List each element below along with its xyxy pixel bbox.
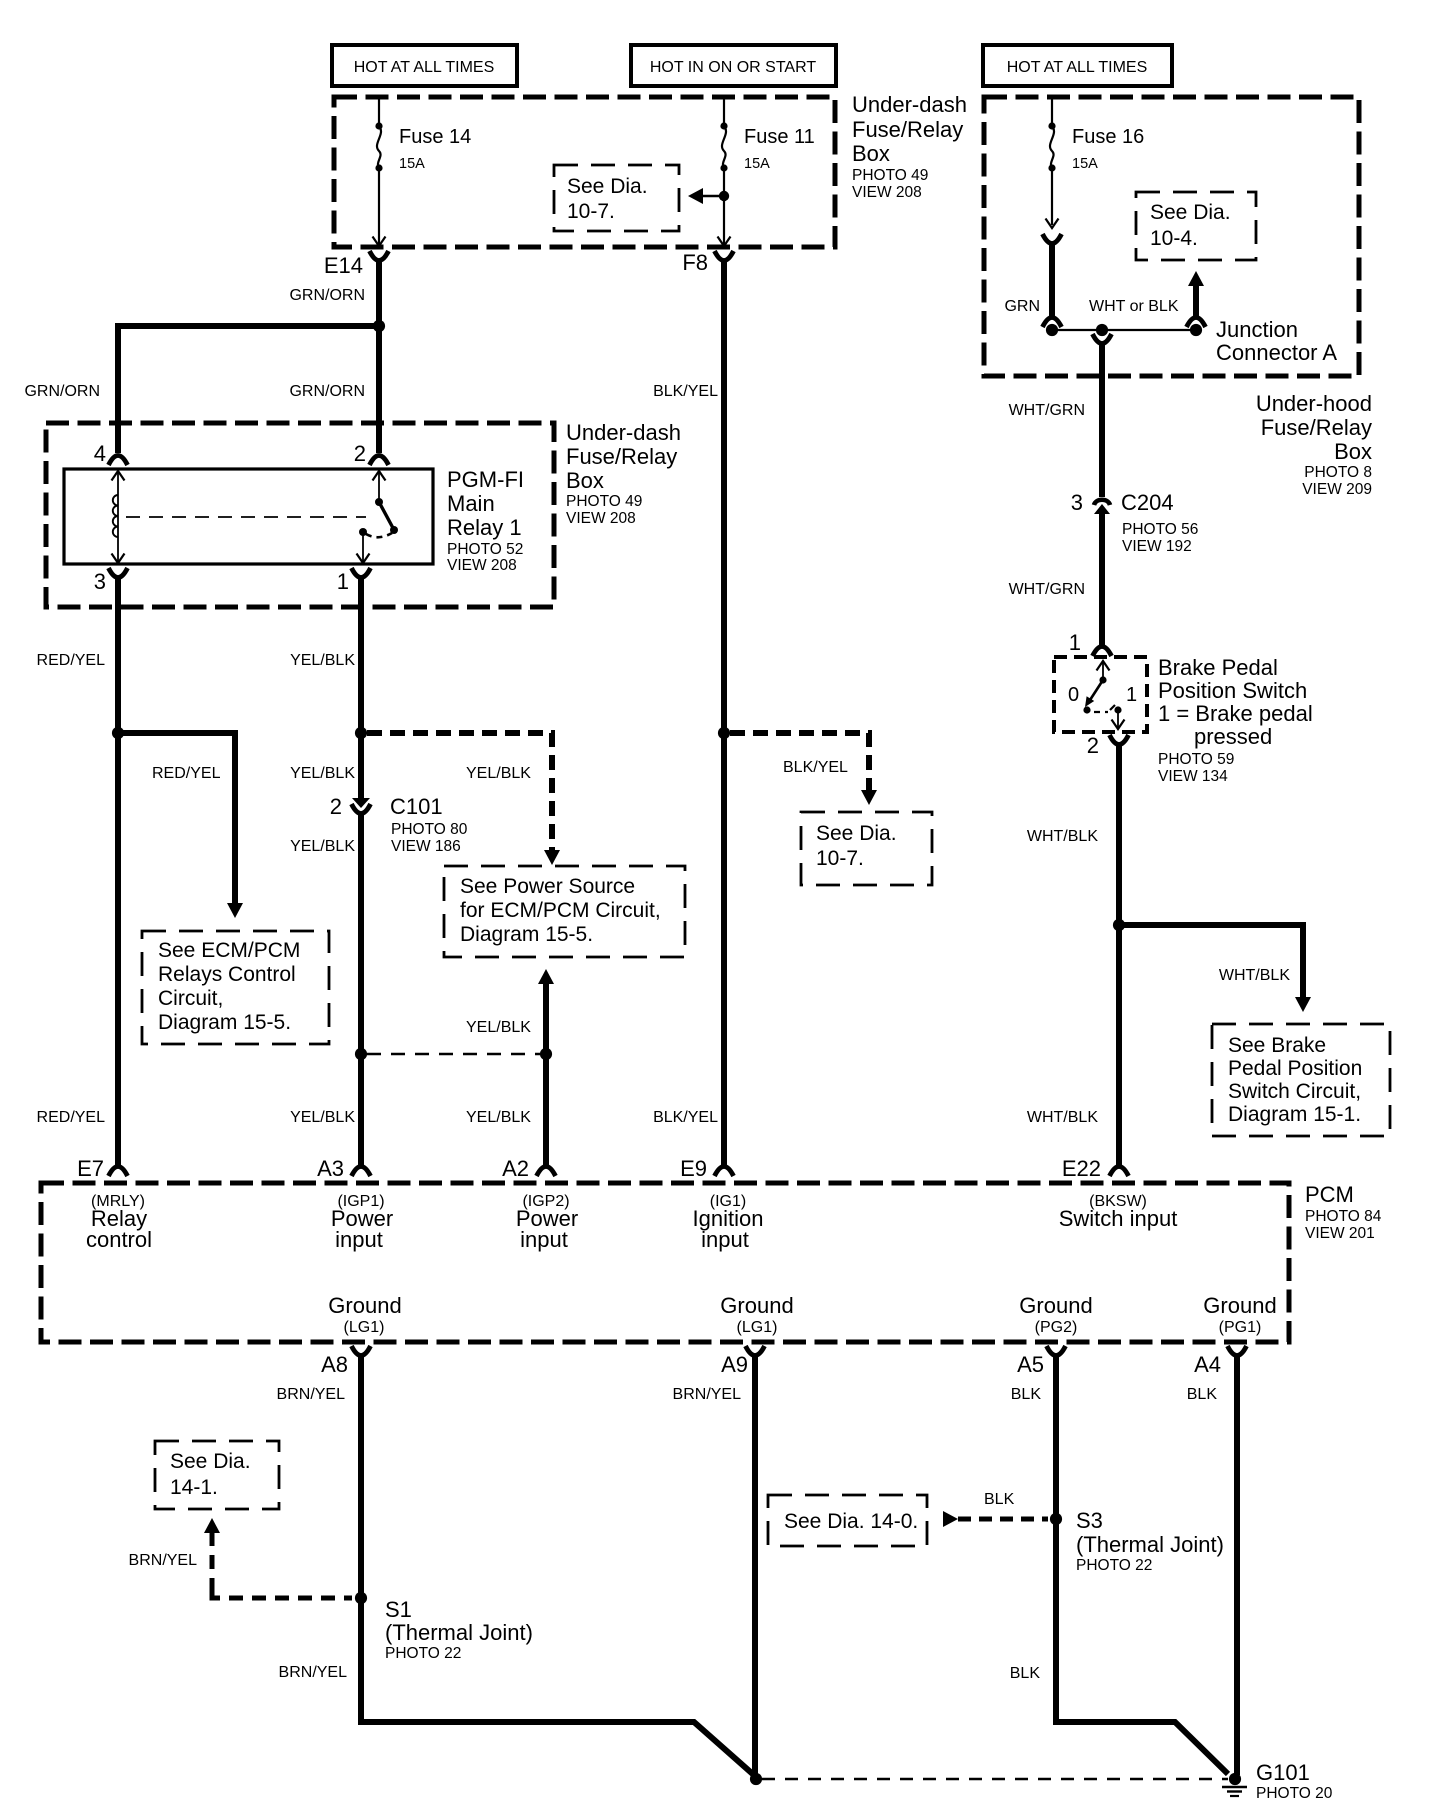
svg-text:(LG1): (LG1) [737,1319,778,1336]
svg-text:A3: A3 [317,1156,344,1181]
svg-text:15A: 15A [1072,156,1098,172]
svg-text:Box: Box [566,468,604,493]
svg-text:(Thermal Joint): (Thermal Joint) [1076,1532,1224,1557]
svg-text:Ground: Ground [1203,1293,1276,1318]
svg-text:3: 3 [94,569,106,594]
svg-text:PHOTO 56: PHOTO 56 [1122,521,1198,538]
svg-text:Pedal Position: Pedal Position [1228,1057,1362,1080]
svg-text:E7: E7 [77,1156,104,1181]
svg-text:RED/YEL: RED/YEL [37,1109,106,1126]
svg-text:Diagram 15-1.: Diagram 15-1. [1228,1103,1361,1126]
svg-text:10-7.: 10-7. [567,200,615,223]
svg-text:Ground: Ground [328,1293,401,1318]
svg-text:A9: A9 [721,1352,748,1377]
svg-text:WHT or BLK: WHT or BLK [1089,298,1179,315]
svg-text:4: 4 [94,441,106,466]
svg-text:Under-dash: Under-dash [852,92,967,117]
svg-text:Relay 1: Relay 1 [447,515,522,540]
svg-text:Under-hood: Under-hood [1256,391,1372,416]
svg-text:See Dia.: See Dia. [816,822,897,845]
svg-text:F8: F8 [682,250,708,275]
svg-text:G101: G101 [1256,1760,1310,1785]
svg-text:See Dia.: See Dia. [1150,201,1231,224]
svg-text:See Power Source: See Power Source [460,875,635,898]
svg-text:GRN/ORN: GRN/ORN [289,287,365,304]
svg-text:WHT/BLK: WHT/BLK [1219,967,1290,984]
svg-text:PHOTO 22: PHOTO 22 [1076,1557,1152,1574]
svg-text:1: 1 [1126,684,1137,706]
svg-text:E22: E22 [1062,1156,1101,1181]
svg-text:Fuse 16: Fuse 16 [1072,126,1144,148]
svg-text:(LG1): (LG1) [344,1319,385,1336]
svg-text:S3: S3 [1076,1508,1103,1533]
svg-text:control: control [86,1227,152,1252]
svg-text:S1: S1 [385,1597,412,1622]
svg-text:HOT AT ALL TIMES: HOT AT ALL TIMES [1007,59,1148,76]
svg-text:3: 3 [1071,490,1083,515]
svg-text:A4: A4 [1194,1352,1221,1377]
svg-text:input: input [335,1227,383,1252]
svg-text:C204: C204 [1121,490,1174,515]
svg-text:15A: 15A [744,156,770,172]
svg-text:GRN/ORN: GRN/ORN [24,383,100,400]
svg-text:BRN/YEL: BRN/YEL [277,1386,346,1403]
svg-text:See Dia.: See Dia. [567,175,648,198]
svg-text:YEL/BLK: YEL/BLK [290,652,355,669]
svg-text:(PG1): (PG1) [1219,1319,1262,1336]
svg-text:Box: Box [852,141,890,166]
svg-text:Switch input: Switch input [1059,1206,1178,1231]
svg-text:RED/YEL: RED/YEL [152,765,221,782]
svg-text:input: input [701,1227,749,1252]
svg-text:BLK/YEL: BLK/YEL [783,759,848,776]
svg-text:Under-dash: Under-dash [566,420,681,445]
svg-text:Diagram 15-5.: Diagram 15-5. [158,1011,291,1034]
svg-text:BRN/YEL: BRN/YEL [673,1386,742,1403]
svg-text:YEL/BLK: YEL/BLK [290,1109,355,1126]
svg-text:2: 2 [354,441,366,466]
svg-text:for ECM/PCM Circuit,: for ECM/PCM Circuit, [460,899,661,922]
svg-text:YEL/BLK: YEL/BLK [290,838,355,855]
svg-text:(Thermal Joint): (Thermal Joint) [385,1620,533,1645]
svg-text:10-7.: 10-7. [816,847,864,870]
svg-text:1: 1 [337,569,349,594]
svg-text:A8: A8 [321,1352,348,1377]
svg-text:BLK: BLK [984,1491,1015,1508]
svg-text:VIEW 208: VIEW 208 [566,510,636,527]
svg-text:PHOTO 49: PHOTO 49 [566,493,642,510]
svg-text:VIEW 134: VIEW 134 [1158,768,1228,785]
svg-text:PHOTO 22: PHOTO 22 [385,1645,461,1662]
svg-text:0: 0 [1068,684,1079,706]
svg-text:Box: Box [1334,439,1372,464]
svg-text:input: input [520,1227,568,1252]
svg-text:A2: A2 [502,1156,529,1181]
svg-text:PHOTO 59: PHOTO 59 [1158,751,1234,768]
svg-text:Diagram 15-5.: Diagram 15-5. [460,923,593,946]
svg-text:Brake Pedal: Brake Pedal [1158,655,1278,680]
svg-text:BRN/YEL: BRN/YEL [279,1664,348,1681]
svg-text:See ECM/PCM: See ECM/PCM [158,939,300,962]
svg-text:PCM: PCM [1305,1182,1354,1207]
svg-text:GRN/ORN: GRN/ORN [289,383,365,400]
svg-text:Connector A: Connector A [1216,340,1337,365]
svg-text:Circuit,: Circuit, [158,987,223,1010]
svg-text:PGM-FI: PGM-FI [447,467,524,492]
svg-text:C101: C101 [390,794,443,819]
svg-text:BLK/YEL: BLK/YEL [653,1109,718,1126]
svg-text:Main: Main [447,491,495,516]
svg-text:PHOTO 20: PHOTO 20 [1256,1785,1333,1802]
svg-text:A5: A5 [1017,1352,1044,1377]
svg-text:Fuse 11: Fuse 11 [744,126,815,148]
svg-text:HOT AT ALL TIMES: HOT AT ALL TIMES [354,59,495,76]
svg-text:1: 1 [1069,630,1081,655]
svg-text:VIEW 201: VIEW 201 [1305,1225,1375,1242]
svg-text:VIEW 209: VIEW 209 [1302,481,1372,498]
svg-text:WHT/BLK: WHT/BLK [1027,828,1098,845]
svg-text:Ground: Ground [720,1293,793,1318]
svg-text:VIEW 208: VIEW 208 [852,184,922,201]
svg-text:10-4.: 10-4. [1150,227,1198,250]
svg-text:See Brake: See Brake [1228,1034,1326,1057]
svg-text:E9: E9 [680,1156,707,1181]
svg-text:BRN/YEL: BRN/YEL [129,1552,198,1569]
svg-text:Position Switch: Position Switch [1158,678,1307,703]
svg-text:HOT IN ON OR START: HOT IN ON OR START [650,59,816,76]
svg-text:14-1.: 14-1. [170,1476,218,1499]
svg-text:pressed: pressed [1194,724,1272,749]
svg-text:Junction: Junction [1216,317,1298,342]
svg-text:BLK: BLK [1010,1665,1041,1682]
svg-text:Fuse/Relay: Fuse/Relay [1261,415,1372,440]
svg-text:Fuse/Relay: Fuse/Relay [566,444,677,469]
svg-text:BLK/YEL: BLK/YEL [653,383,718,400]
svg-text:RED/YEL: RED/YEL [37,652,106,669]
svg-text:YEL/BLK: YEL/BLK [466,765,531,782]
svg-text:Fuse/Relay: Fuse/Relay [852,117,963,142]
svg-text:2: 2 [1087,733,1099,758]
svg-text:PHOTO 80: PHOTO 80 [391,821,468,838]
svg-text:1 = Brake pedal: 1 = Brake pedal [1158,701,1313,726]
svg-text:YEL/BLK: YEL/BLK [466,1109,531,1126]
svg-text:BLK: BLK [1011,1386,1042,1403]
svg-text:E14: E14 [324,253,363,278]
svg-text:Relays Control: Relays Control [158,963,296,986]
svg-text:GRN: GRN [1004,298,1040,315]
svg-text:YEL/BLK: YEL/BLK [466,1019,531,1036]
svg-text:PHOTO 84: PHOTO 84 [1305,1208,1382,1225]
svg-text:VIEW 192: VIEW 192 [1122,538,1192,555]
svg-text:Fuse 14: Fuse 14 [399,126,471,148]
svg-text:PHOTO 8: PHOTO 8 [1304,464,1372,481]
svg-text:15A: 15A [399,156,425,172]
svg-text:VIEW 208: VIEW 208 [447,557,517,574]
svg-text:WHT/GRN: WHT/GRN [1009,581,1085,598]
svg-text:YEL/BLK: YEL/BLK [290,765,355,782]
svg-text:2: 2 [330,794,342,819]
svg-text:WHT/GRN: WHT/GRN [1009,402,1085,419]
svg-text:WHT/BLK: WHT/BLK [1027,1109,1098,1126]
svg-text:See Dia. 14-0.: See Dia. 14-0. [784,1510,918,1533]
svg-text:PHOTO 49: PHOTO 49 [852,167,928,184]
svg-text:Switch Circuit,: Switch Circuit, [1228,1080,1361,1103]
svg-text:(PG2): (PG2) [1035,1319,1078,1336]
svg-text:Ground: Ground [1019,1293,1092,1318]
svg-text:PHOTO 52: PHOTO 52 [447,541,523,558]
svg-text:VIEW 186: VIEW 186 [391,838,461,855]
svg-text:See Dia.: See Dia. [170,1450,251,1473]
svg-text:BLK: BLK [1187,1386,1218,1403]
